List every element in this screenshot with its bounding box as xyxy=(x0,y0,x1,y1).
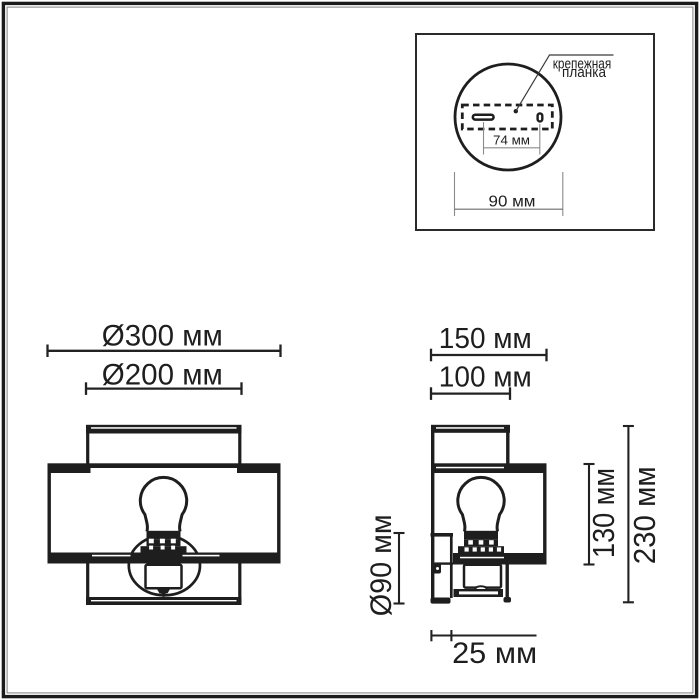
svg-text:230 мм: 230 мм xyxy=(628,466,662,564)
svg-text:25 мм: 25 мм xyxy=(452,637,537,670)
svg-text:74 мм: 74 мм xyxy=(493,133,530,148)
svg-text:Ø200 мм: Ø200 мм xyxy=(102,359,223,392)
svg-text:150 мм: 150 мм xyxy=(439,323,532,355)
svg-text:планка: планка xyxy=(562,65,607,81)
svg-text:100 мм: 100 мм xyxy=(439,362,532,394)
svg-text:90 мм: 90 мм xyxy=(489,194,536,211)
svg-text:Ø90 мм: Ø90 мм xyxy=(365,514,398,616)
svg-text:Ø300 мм: Ø300 мм xyxy=(102,320,223,353)
svg-text:130 мм: 130 мм xyxy=(587,468,621,558)
